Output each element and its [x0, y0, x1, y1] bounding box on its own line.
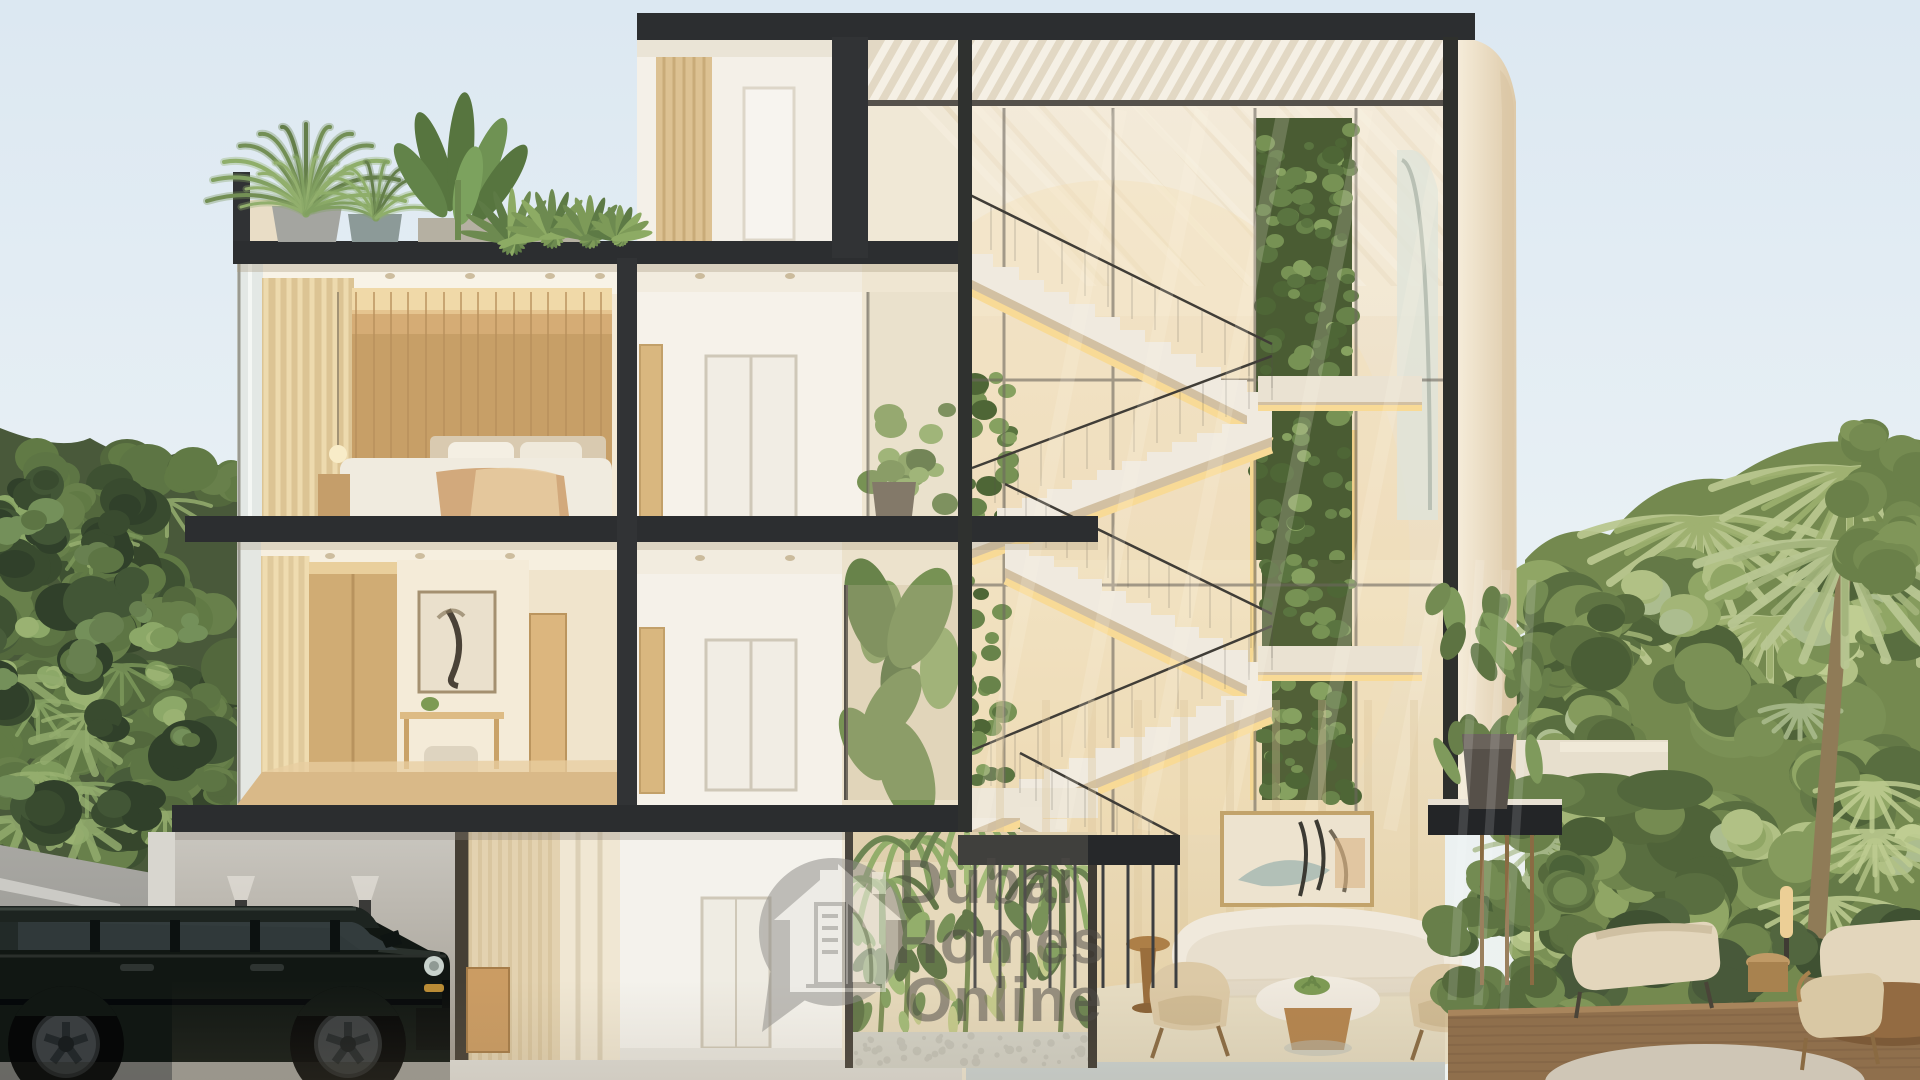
svg-text:Online: Online	[904, 966, 1103, 1035]
svg-text:Dubai: Dubai	[898, 848, 1075, 917]
